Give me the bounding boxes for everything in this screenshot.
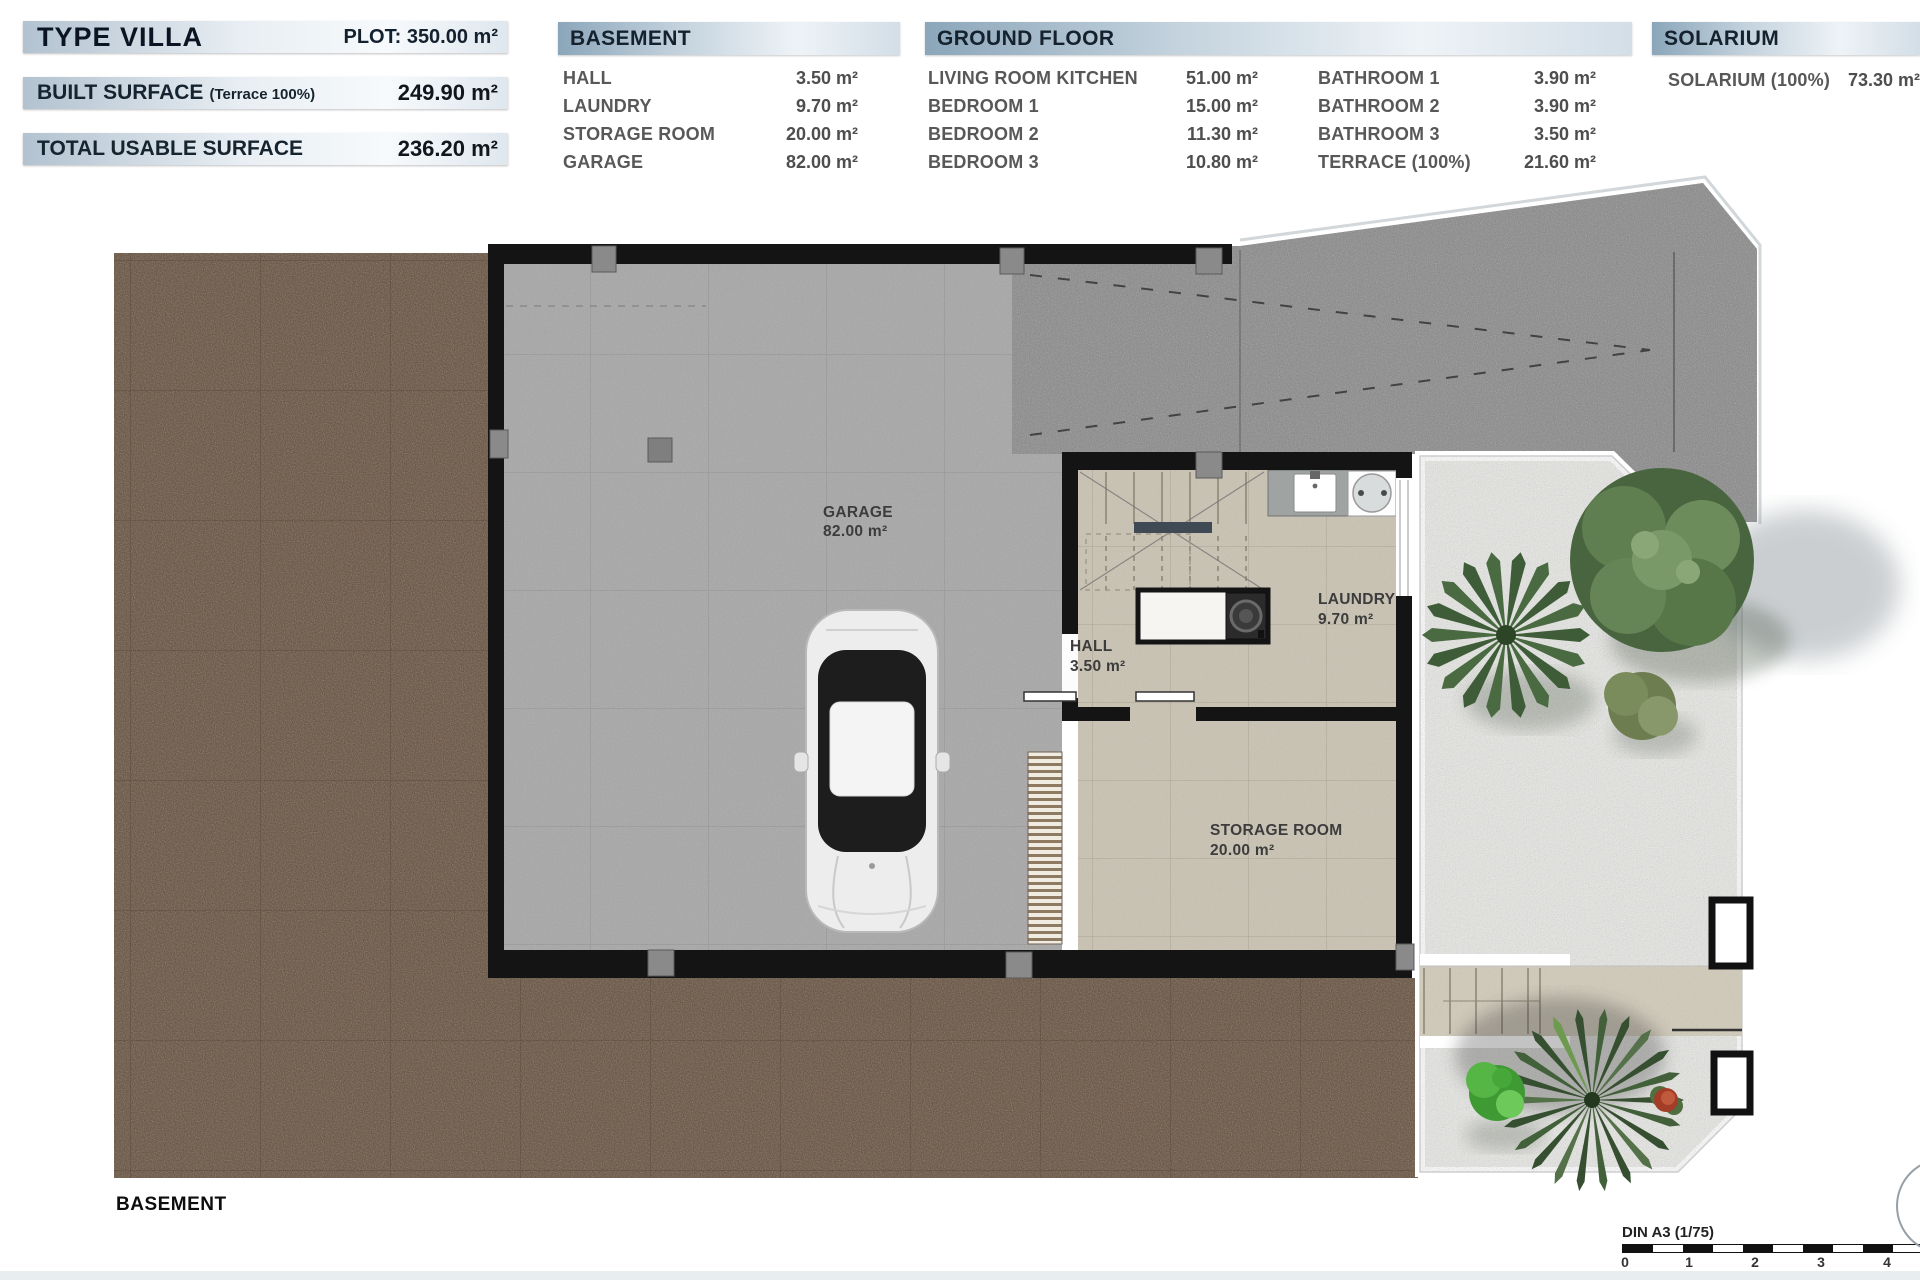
hall-area: 3.50 m²	[1070, 658, 1126, 675]
scale-bar-segments	[1622, 1244, 1920, 1253]
stair-landing	[1134, 522, 1212, 533]
sink-icon	[1294, 474, 1336, 512]
table-row: BEDROOM 310.80 m²	[928, 148, 1258, 176]
table-row: BEDROOM 211.30 m²	[928, 120, 1258, 148]
solarium-table-header: SOLARIUM	[1652, 22, 1920, 55]
table-row: BEDROOM 115.00 m²	[928, 92, 1258, 120]
scale-bar: DIN A3 (1/75) 0 1 2 3 4	[1622, 1224, 1920, 1270]
car-roof	[830, 702, 914, 796]
storage-label: STORAGE ROOM	[1210, 822, 1343, 839]
large-tree	[1570, 468, 1754, 652]
sheet-edge	[0, 1271, 1920, 1280]
table-row: BATHROOM 13.90 m²	[1318, 64, 1596, 92]
plot-value: PLOT: 350.00 m²	[343, 26, 498, 49]
type-villa-bar: TYPE VILLA PLOT: 350.00 m²	[23, 21, 508, 53]
laundry-counter	[1268, 470, 1396, 516]
planter-box	[1714, 1054, 1750, 1112]
washing-machine-icon	[1226, 593, 1266, 639]
solarium-table-title: SOLARIUM	[1664, 27, 1779, 51]
storage-area: 20.00 m²	[1210, 842, 1274, 859]
built-surface-note: (Terrace 100%)	[209, 86, 315, 103]
washing-machine-counter	[1138, 590, 1268, 642]
table-row: LAUNDRY9.70 m²	[563, 92, 858, 120]
total-usable-value: 236.20 m²	[398, 136, 498, 162]
laundry-area: 9.70 m²	[1318, 611, 1374, 628]
built-surface-bar: BUILT SURFACE(Terrace 100%) 249.90 m²	[23, 77, 508, 109]
table-row: TERRACE (100%)21.60 m²	[1318, 148, 1596, 176]
table-row: HALL3.50 m²	[563, 64, 858, 92]
type-villa-title: TYPE VILLA	[37, 22, 203, 53]
table-row: BATHROOM 23.90 m²	[1318, 92, 1596, 120]
car-top-view	[794, 610, 950, 932]
ground-floor-table-header: GROUND FLOOR	[925, 22, 1632, 55]
table-row: LIVING ROOM KITCHEN51.00 m²	[928, 64, 1258, 92]
door-leaf	[1136, 692, 1194, 701]
table-row: GARAGE82.00 m²	[563, 148, 858, 176]
door-leaf	[1024, 692, 1076, 701]
hall-label: HALL	[1070, 638, 1113, 655]
floor-name-label: BASEMENT	[116, 1194, 227, 1216]
scale-bar-ticks: 0 1 2 3 4	[1622, 1254, 1920, 1270]
planter-box	[1712, 900, 1750, 966]
garage-floor	[500, 260, 1065, 952]
table-row: STORAGE ROOM20.00 m²	[563, 120, 858, 148]
total-usable-label: TOTAL USABLE SURFACE	[37, 137, 303, 161]
table-row: SOLARIUM (100%)73.30 m²	[1668, 66, 1920, 94]
table-row: BATHROOM 33.50 m²	[1318, 120, 1596, 148]
ground-floor-table-title: GROUND FLOOR	[937, 27, 1114, 51]
laundry-label: LAUNDRY	[1318, 591, 1396, 608]
car-mirror	[936, 752, 950, 772]
car-mirror	[794, 752, 808, 772]
built-surface-label: BUILT SURFACE	[37, 81, 203, 104]
built-surface-value: 249.90 m²	[398, 80, 498, 106]
total-usable-bar: TOTAL USABLE SURFACE 236.20 m²	[23, 133, 508, 165]
slatted-grille	[1028, 752, 1062, 944]
basement-table-header: BASEMENT	[558, 22, 900, 55]
garage-label: GARAGE	[823, 504, 893, 521]
basement-table-title: BASEMENT	[570, 27, 691, 51]
garage-area: 82.00 m²	[823, 523, 887, 540]
scale-bar-title: DIN A3 (1/75)	[1622, 1224, 1920, 1241]
floor-plan-canvas: GARAGE 82.00 m² HALL 3.50 m² LAUNDRY 9.7…	[0, 0, 1920, 1280]
